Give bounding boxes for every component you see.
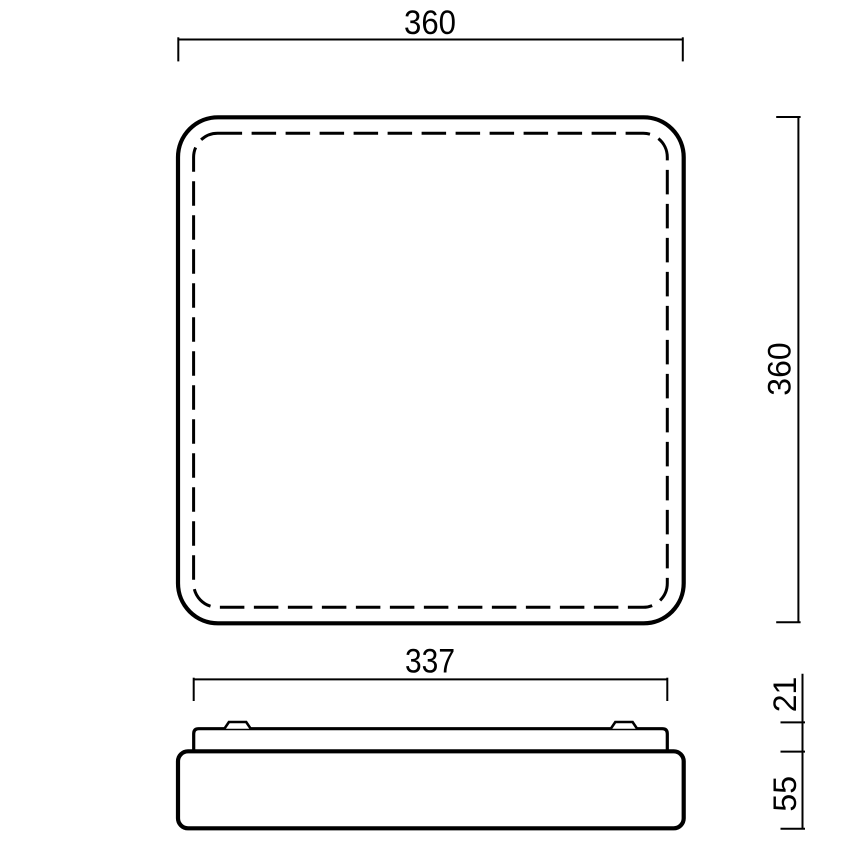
svg-text:360: 360 <box>404 4 456 42</box>
svg-text:360: 360 <box>762 342 798 395</box>
svg-text:55: 55 <box>767 776 803 812</box>
svg-text:21: 21 <box>767 677 803 713</box>
svg-text:337: 337 <box>405 643 455 681</box>
